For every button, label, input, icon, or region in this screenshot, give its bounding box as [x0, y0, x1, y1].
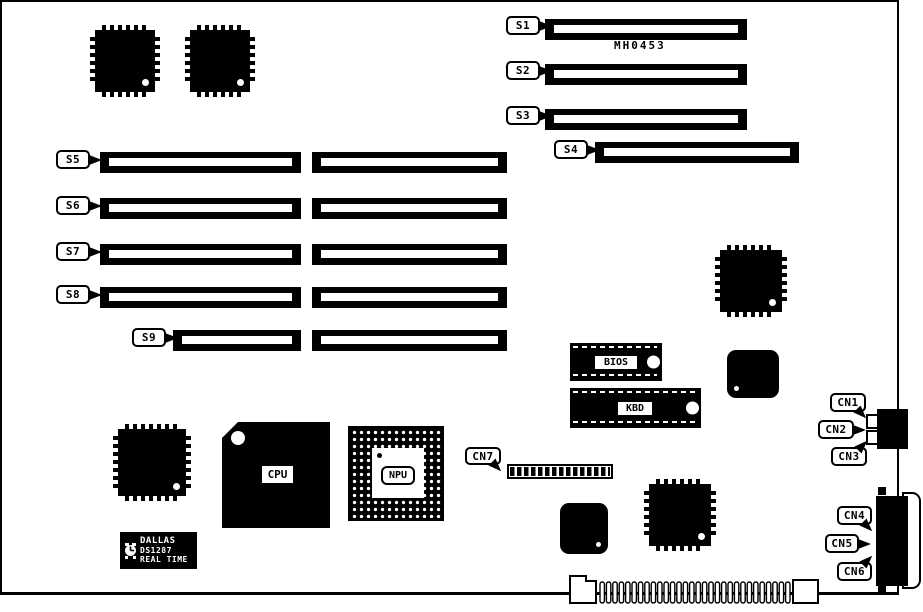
chip-kbd: KBD: [570, 388, 701, 428]
edge-step-right: [793, 580, 818, 603]
connector-port-lower: [866, 430, 879, 445]
slot-s6-right: [312, 198, 507, 219]
slot-label-text: S4: [564, 143, 578, 156]
connector-label-cn4: CN4: [837, 506, 872, 525]
mount-screw-icon: [878, 585, 886, 593]
chip-plcc-1: [727, 350, 779, 398]
slot-s2: [545, 64, 747, 85]
connector-label-cn3: CN3: [831, 447, 867, 466]
connector-label-cn7: CN7: [465, 447, 501, 465]
slot-label-text: S5: [66, 153, 80, 166]
chip-bios: BIOS: [570, 343, 662, 381]
connector-block-cn1-cn3: [877, 409, 908, 449]
dip-notch-icon: [647, 356, 660, 369]
chip-qfp-3: [715, 245, 787, 317]
edge-step-left: [570, 576, 596, 603]
slot-s4: [595, 142, 799, 163]
slot-s5-right: [312, 152, 507, 173]
slot-s8-right: [312, 287, 507, 308]
chip-cpu: CPU: [222, 422, 330, 528]
slot-label-s8: S8: [56, 285, 90, 304]
slot-label-text: S3: [516, 109, 530, 122]
slot-label-s1: S1: [506, 16, 540, 35]
rtc-text: DALLAS DS1287 REAL TIME: [140, 537, 188, 564]
slot-s7-right: [312, 244, 507, 265]
chip-plcc-2: [560, 503, 608, 554]
connector-label-text: CN2: [825, 423, 846, 436]
slot-s7-left: [100, 244, 301, 265]
chip-npu-socket: NPU: [348, 426, 444, 521]
slot-label-s5: S5: [56, 150, 90, 169]
callout-arrow-icon: [853, 425, 866, 435]
mount-screw-icon: [878, 487, 886, 495]
part-number-label: MH0453: [614, 39, 666, 52]
npu-label: NPU: [381, 466, 415, 485]
slot-label-s7: S7: [56, 242, 90, 261]
pin1-dot-icon: [377, 453, 382, 458]
connector-label-text: CN4: [844, 509, 865, 522]
chip-qfp-2: [185, 25, 255, 97]
slot-label-text: S6: [66, 199, 80, 212]
callout-arrow-icon: [858, 539, 871, 549]
dip-notch-icon: [686, 402, 699, 415]
slot-label-s2: S2: [506, 61, 540, 80]
connector-label-cn2: CN2: [818, 420, 854, 439]
slot-label-s3: S3: [506, 106, 540, 125]
alarm-clock-icon: [124, 541, 137, 560]
bios-label: BIOS: [595, 356, 637, 369]
slot-label-text: S7: [66, 245, 80, 258]
slot-label-text: S1: [516, 19, 530, 32]
card-edge-connector: [555, 570, 835, 608]
rtc-type: REAL TIME: [140, 555, 188, 564]
edge-fingers: [600, 582, 790, 603]
connector-block-cn4-cn6: [876, 496, 908, 586]
slot-label-text: S8: [66, 288, 80, 301]
connector-label-text: CN7: [472, 450, 493, 463]
slot-s6-left: [100, 198, 301, 219]
slot-s8-left: [100, 287, 301, 308]
connector-label-cn6: CN6: [837, 562, 872, 581]
slot-label-text: S2: [516, 64, 530, 77]
connector-label-text: CN3: [838, 450, 859, 463]
chip-qfp-1: [90, 25, 160, 97]
rtc-part: DS1287: [140, 546, 188, 555]
slot-s1: [545, 19, 747, 40]
slot-label-text: S9: [142, 331, 156, 344]
slot-s5-left: [100, 152, 301, 173]
connector-label-cn1: CN1: [830, 393, 866, 412]
connector-port-upper: [866, 414, 879, 429]
connector-label-text: CN6: [844, 565, 865, 578]
slot-s3: [545, 109, 747, 130]
slot-label-s9: S9: [132, 328, 166, 347]
connector-label-text: CN5: [831, 537, 852, 550]
chip-qfp-5: [644, 479, 716, 551]
pin-header-cn7: [507, 464, 613, 479]
slot-label-s4: S4: [554, 140, 588, 159]
slot-s9-right: [312, 330, 507, 351]
chip-rtc: DALLAS DS1287 REAL TIME: [120, 532, 197, 569]
slot-s9-left: [173, 330, 301, 351]
connector-label-text: CN1: [837, 396, 858, 409]
slot-label-s6: S6: [56, 196, 90, 215]
cpu-label: CPU: [262, 466, 293, 483]
connector-label-cn5: CN5: [825, 534, 859, 553]
kbd-label: KBD: [618, 402, 652, 415]
motherboard-diagram: MH0453 S1 S2 S3 S4 S5 S6 S7 S8: [0, 0, 923, 612]
chip-qfp-4: [113, 424, 191, 501]
rtc-brand: DALLAS: [140, 537, 188, 546]
